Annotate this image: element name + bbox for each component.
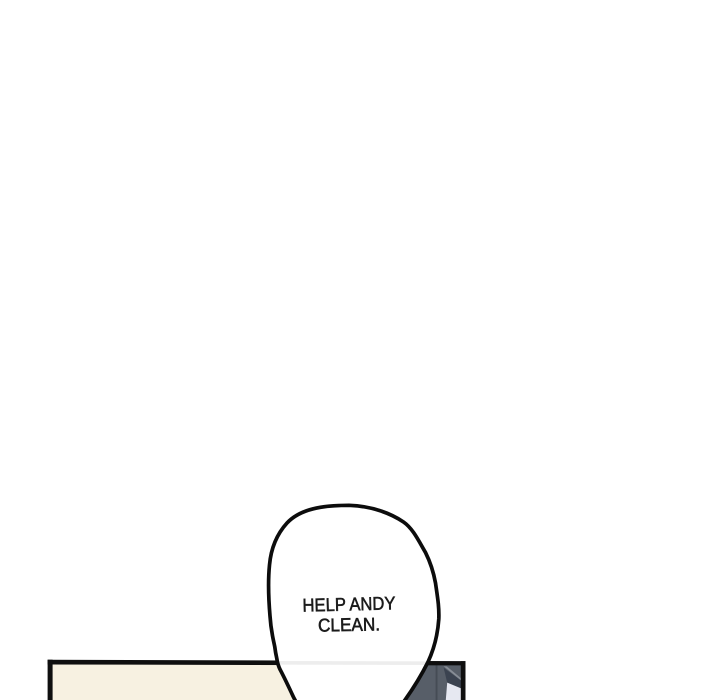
svg-text:CLEAN.: CLEAN.	[318, 613, 380, 635]
svg-text:HELP ANDY: HELP ANDY	[302, 592, 395, 615]
